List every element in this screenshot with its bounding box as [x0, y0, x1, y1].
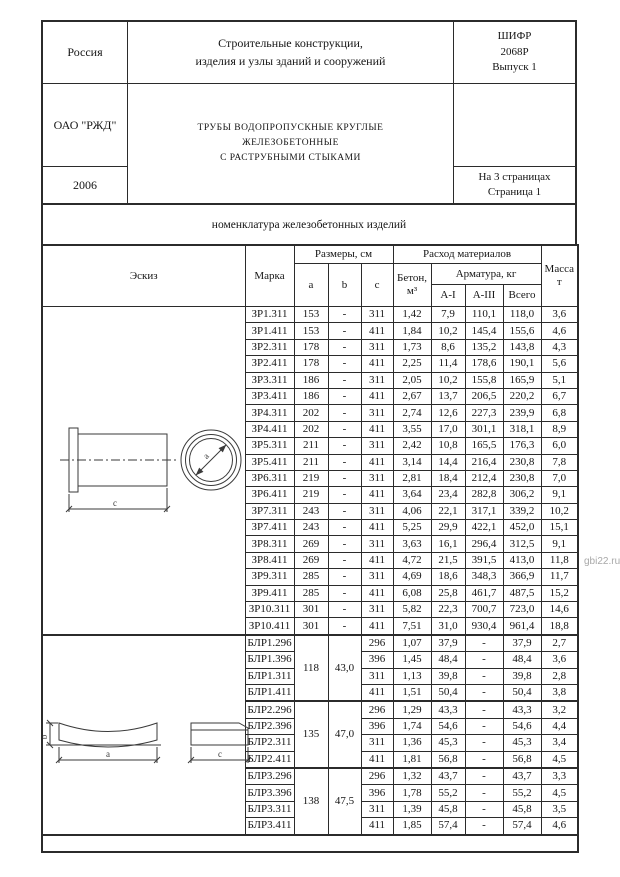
cell-rebar-total: 312,5 — [503, 536, 541, 552]
cell-dim-b: - — [328, 569, 361, 585]
cell-dim-b: - — [328, 454, 361, 470]
cell-rebar-aiii: - — [465, 768, 503, 785]
cell-rebar-ai: 17,0 — [431, 421, 465, 437]
cell-dim-c: 311 — [361, 438, 393, 454]
cell-mass: 15,1 — [541, 520, 578, 536]
cell-dim-c: 411 — [361, 818, 393, 835]
cell-dim-b: - — [328, 388, 361, 404]
cell-mass: 3,6 — [541, 652, 578, 668]
cell-dim-a: 153 — [294, 307, 328, 323]
cell-dim-b: - — [328, 503, 361, 519]
cell-concrete: 1,85 — [393, 818, 431, 835]
cell-mark: БЛР2.411 — [245, 751, 294, 768]
cell-dim-c: 411 — [361, 585, 393, 601]
cell-rebar-total: 487,5 — [503, 585, 541, 601]
cell-mass: 10,2 — [541, 503, 578, 519]
cell-rebar-total: 230,8 — [503, 470, 541, 486]
cell-rebar-aiii: 930,4 — [465, 618, 503, 635]
cell-dim-c: 411 — [361, 388, 393, 404]
cell-rebar-total: 961,4 — [503, 618, 541, 635]
cell-dim-c: 396 — [361, 718, 393, 734]
cell-rebar-aiii: 348,3 — [465, 569, 503, 585]
cell-rebar-total: 413,0 — [503, 552, 541, 568]
cell-dim-a: 269 — [294, 536, 328, 552]
table-row: b a c БЛР1.29611843,02961,0737,9-37,92,7 — [42, 635, 578, 652]
cell-mark: ЗР8.411 — [245, 552, 294, 568]
cell-mass: 3,6 — [541, 307, 578, 323]
cell-dim-b: - — [328, 552, 361, 568]
saddle-sketch: b a c — [43, 697, 253, 773]
pipe-length-label: c — [113, 498, 117, 508]
cell-dim-c: 411 — [361, 684, 393, 701]
cell-concrete: 1,13 — [393, 668, 431, 684]
cell-dim-c: 411 — [361, 421, 393, 437]
table-footer-strip — [42, 835, 578, 852]
cell-mass: 14,6 — [541, 602, 578, 618]
cell-dim-a: 285 — [294, 585, 328, 601]
cell-rebar-total: 318,1 — [503, 421, 541, 437]
cell-rebar-total: 54,6 — [503, 718, 541, 734]
cell-dim-c: 411 — [361, 552, 393, 568]
cell-dim-b: - — [328, 470, 361, 486]
cell-mass: 3,5 — [541, 801, 578, 817]
cell-dim-c: 311 — [361, 372, 393, 388]
cell-mark: ЗР5.411 — [245, 454, 294, 470]
cell-dim-a: 211 — [294, 438, 328, 454]
cell-rebar-aiii: 461,7 — [465, 585, 503, 601]
cell-mass: 4,6 — [541, 818, 578, 835]
cell-mass: 4,3 — [541, 339, 578, 355]
cell-concrete: 2,67 — [393, 388, 431, 404]
organization-label: ОАО "РЖД" — [43, 84, 128, 167]
cell-mass: 6,7 — [541, 388, 578, 404]
cell-dim-c: 311 — [361, 801, 393, 817]
cell-mark: БЛР2.311 — [245, 735, 294, 751]
cell-dim-a: 186 — [294, 372, 328, 388]
cell-mark: ЗР1.411 — [245, 323, 294, 339]
table-body: c a ЗР1.311153-3111,427,9110,1118,03,6ЗР… — [42, 307, 578, 852]
cell-rebar-ai: 8,6 — [431, 339, 465, 355]
col-header-concrete: Бетон, м³ — [393, 264, 431, 307]
cell-mark: БЛР1.311 — [245, 668, 294, 684]
cell-dim-b: 43,0 — [328, 635, 361, 702]
cell-mark: ЗР2.311 — [245, 339, 294, 355]
cell-rebar-aiii: 422,1 — [465, 520, 503, 536]
cell-rebar-total: 339,2 — [503, 503, 541, 519]
cell-mark: ЗР4.411 — [245, 421, 294, 437]
cell-dim-c: 311 — [361, 339, 393, 355]
cell-dim-c: 411 — [361, 520, 393, 536]
cell-mass: 3,8 — [541, 684, 578, 701]
cell-mark: БЛР2.296 — [245, 701, 294, 718]
cell-mass: 3,4 — [541, 735, 578, 751]
cell-concrete: 2,42 — [393, 438, 431, 454]
cell-concrete: 1,81 — [393, 751, 431, 768]
cell-rebar-total: 55,2 — [503, 785, 541, 801]
cell-rebar-aiii: - — [465, 668, 503, 684]
cell-rebar-total: 366,9 — [503, 569, 541, 585]
cell-rebar-aiii: 110,1 — [465, 307, 503, 323]
cell-rebar-total: 220,2 — [503, 388, 541, 404]
cell-rebar-ai: 45,3 — [431, 735, 465, 751]
pipe-side-view: c — [60, 428, 176, 512]
cell-concrete: 5,25 — [393, 520, 431, 536]
cell-dim-a: 135 — [294, 701, 328, 768]
cell-mark: ЗР1.311 — [245, 307, 294, 323]
cell-mass: 15,2 — [541, 585, 578, 601]
cell-dim-a: 138 — [294, 768, 328, 835]
cell-rebar-aiii: 296,4 — [465, 536, 503, 552]
cell-dim-b: - — [328, 356, 361, 372]
cell-mass: 18,8 — [541, 618, 578, 635]
cell-rebar-ai: 14,4 — [431, 454, 465, 470]
cell-rebar-total: 176,3 — [503, 438, 541, 454]
cell-dim-b: - — [328, 307, 361, 323]
cell-rebar-aiii: - — [465, 718, 503, 734]
cell-mark: ЗР6.311 — [245, 470, 294, 486]
cell-rebar-total: 50,4 — [503, 684, 541, 701]
pipe-sketch: c a — [45, 418, 243, 522]
cell-rebar-ai: 43,7 — [431, 768, 465, 785]
cell-rebar-ai: 43,3 — [431, 701, 465, 718]
cell-mass: 7,0 — [541, 470, 578, 486]
cell-concrete: 3,14 — [393, 454, 431, 470]
document-page: Россия ОАО "РЖД" 2006 Строительные конст… — [0, 0, 620, 877]
cell-dim-a: 211 — [294, 454, 328, 470]
cell-rebar-aiii: 282,8 — [465, 487, 503, 503]
col-header-dimensions: Размеры, см — [294, 245, 393, 264]
cell-rebar-aiii: - — [465, 635, 503, 652]
sketch-saddle-cell: b a c — [42, 635, 245, 835]
pages-label: На 3 страницах Страница 1 — [454, 167, 575, 203]
cell-rebar-ai: 23,4 — [431, 487, 465, 503]
cell-rebar-aiii: 700,7 — [465, 602, 503, 618]
cell-mark: ЗР5.311 — [245, 438, 294, 454]
saddle-front-view: b a — [43, 723, 161, 763]
cell-dim-c: 296 — [361, 635, 393, 652]
year-label: 2006 — [43, 167, 128, 203]
cell-concrete: 1,39 — [393, 801, 431, 817]
document-title: ТРУБЫ ВОДОПРОПУСКНЫЕ КРУГЛЫЕ ЖЕЛЕЗОБЕТОН… — [128, 84, 454, 203]
cell-dim-c: 411 — [361, 454, 393, 470]
cell-dim-c: 411 — [361, 751, 393, 768]
cell-rebar-total: 452,0 — [503, 520, 541, 536]
cell-dim-b: - — [328, 520, 361, 536]
cell-concrete: 3,64 — [393, 487, 431, 503]
cell-rebar-aiii: 227,3 — [465, 405, 503, 421]
cell-rebar-ai: 7,9 — [431, 307, 465, 323]
cell-rebar-aiii: - — [465, 785, 503, 801]
cell-rebar-ai: 50,4 — [431, 684, 465, 701]
cell-concrete: 3,63 — [393, 536, 431, 552]
cell-rebar-ai: 29,9 — [431, 520, 465, 536]
cell-dim-a: 301 — [294, 602, 328, 618]
title-block: Россия ОАО "РЖД" 2006 Строительные конст… — [41, 20, 577, 205]
cell-mark: ЗР10.411 — [245, 618, 294, 635]
cell-mark: ЗР3.311 — [245, 372, 294, 388]
cell-rebar-ai: 18,6 — [431, 569, 465, 585]
cell-mark: БЛР1.296 — [245, 635, 294, 652]
cell-mass: 9,1 — [541, 536, 578, 552]
cell-concrete: 3,55 — [393, 421, 431, 437]
cell-rebar-aiii: 135,2 — [465, 339, 503, 355]
cell-concrete: 4,69 — [393, 569, 431, 585]
cell-rebar-ai: 22,3 — [431, 602, 465, 618]
cell-rebar-aiii: 145,4 — [465, 323, 503, 339]
cell-mass: 4,5 — [541, 785, 578, 801]
cell-dim-b: - — [328, 602, 361, 618]
cell-dim-b: - — [328, 339, 361, 355]
cell-dim-b: 47,0 — [328, 701, 361, 768]
cell-dim-a: 219 — [294, 470, 328, 486]
col-header-a: a — [294, 264, 328, 307]
series-title: Строительные конструкции, изделия и узлы… — [128, 22, 454, 84]
col-header-b: b — [328, 264, 361, 307]
cell-mass: 6,8 — [541, 405, 578, 421]
cell-concrete: 1,07 — [393, 635, 431, 652]
col-header-ai: А-I — [431, 285, 465, 307]
cell-mark: БЛР2.396 — [245, 718, 294, 734]
cell-rebar-aiii: 178,6 — [465, 356, 503, 372]
cell-mass: 9,1 — [541, 487, 578, 503]
cell-rebar-total: 43,3 — [503, 701, 541, 718]
saddle-height-label: b — [43, 734, 49, 739]
cell-mark: ЗР3.411 — [245, 388, 294, 404]
cell-rebar-ai: 56,8 — [431, 751, 465, 768]
cell-rebar-ai: 12,6 — [431, 405, 465, 421]
cell-rebar-ai: 22,1 — [431, 503, 465, 519]
cell-mark: БЛР3.396 — [245, 785, 294, 801]
empty-cell — [454, 84, 575, 167]
cell-concrete: 2,05 — [393, 372, 431, 388]
cell-rebar-aiii: - — [465, 652, 503, 668]
cell-mass: 11,8 — [541, 552, 578, 568]
watermark: gbi22.ru — [584, 556, 620, 567]
cell-mass: 5,1 — [541, 372, 578, 388]
product-table: Эскиз Марка Размеры, см Расход материало… — [41, 244, 579, 853]
cell-dim-c: 411 — [361, 356, 393, 372]
cell-rebar-ai: 10,2 — [431, 323, 465, 339]
col-header-aiii: А-III — [465, 285, 503, 307]
cell-concrete: 7,51 — [393, 618, 431, 635]
cell-mass: 4,4 — [541, 718, 578, 734]
cell-dim-c: 411 — [361, 487, 393, 503]
cell-rebar-aiii: - — [465, 684, 503, 701]
table-row: c a ЗР1.311153-3111,427,9110,1118,03,6 — [42, 307, 578, 323]
cell-rebar-aiii: 212,4 — [465, 470, 503, 486]
section-title: номенклатура железобетонных изделий — [41, 205, 577, 244]
cell-rebar-total: 45,8 — [503, 801, 541, 817]
saddle-length-label: c — [218, 749, 222, 759]
cell-mark: ЗР10.311 — [245, 602, 294, 618]
cell-dim-a: 186 — [294, 388, 328, 404]
cell-mass: 2,7 — [541, 635, 578, 652]
cell-dim-a: 178 — [294, 339, 328, 355]
cell-concrete: 1,73 — [393, 339, 431, 355]
cell-rebar-aiii: 391,5 — [465, 552, 503, 568]
cell-rebar-total: 43,7 — [503, 768, 541, 785]
pipe-diameter-label: a — [201, 451, 211, 461]
cell-concrete: 1,29 — [393, 701, 431, 718]
cell-concrete: 1,45 — [393, 652, 431, 668]
cell-rebar-total: 45,3 — [503, 735, 541, 751]
cell-rebar-aiii: - — [465, 751, 503, 768]
pipe-front-view: a — [181, 430, 241, 490]
cell-concrete: 2,74 — [393, 405, 431, 421]
col-header-c: c — [361, 264, 393, 307]
cell-rebar-total: 190,1 — [503, 356, 541, 372]
cell-mark: ЗР8.311 — [245, 536, 294, 552]
cell-dim-b: - — [328, 323, 361, 339]
cell-mass: 11,7 — [541, 569, 578, 585]
cell-concrete: 2,25 — [393, 356, 431, 372]
cell-concrete: 4,06 — [393, 503, 431, 519]
cell-mark: ЗР2.411 — [245, 356, 294, 372]
cell-dim-c: 311 — [361, 503, 393, 519]
cell-dim-c: 296 — [361, 768, 393, 785]
country-label: Россия — [43, 22, 128, 84]
cell-rebar-ai: 25,8 — [431, 585, 465, 601]
cell-concrete: 1,51 — [393, 684, 431, 701]
cell-dim-a: 153 — [294, 323, 328, 339]
cell-dim-a: 118 — [294, 635, 328, 702]
col-header-consumption: Расход материалов — [393, 245, 541, 264]
cell-rebar-total: 143,8 — [503, 339, 541, 355]
cell-dim-a: 243 — [294, 520, 328, 536]
cell-mark: ЗР6.411 — [245, 487, 294, 503]
cell-rebar-ai: 21,5 — [431, 552, 465, 568]
sketch-pipe-cell: c a — [42, 307, 245, 635]
cell-mark: БЛР3.411 — [245, 818, 294, 835]
cell-concrete: 1,84 — [393, 323, 431, 339]
cell-mass: 5,6 — [541, 356, 578, 372]
cell-dim-c: 311 — [361, 307, 393, 323]
cell-rebar-total: 57,4 — [503, 818, 541, 835]
cell-concrete: 1,78 — [393, 785, 431, 801]
cell-rebar-ai: 37,9 — [431, 635, 465, 652]
cell-dim-c: 311 — [361, 536, 393, 552]
cell-rebar-ai: 45,8 — [431, 801, 465, 817]
cell-dim-b: - — [328, 372, 361, 388]
cell-rebar-aiii: 155,8 — [465, 372, 503, 388]
cell-rebar-aiii: - — [465, 701, 503, 718]
cell-rebar-total: 39,8 — [503, 668, 541, 684]
cell-dim-a: 202 — [294, 421, 328, 437]
cell-dim-c: 311 — [361, 602, 393, 618]
cell-rebar-ai: 57,4 — [431, 818, 465, 835]
cell-mass: 3,3 — [541, 768, 578, 785]
cell-rebar-total: 48,4 — [503, 652, 541, 668]
cell-rebar-aiii: - — [465, 735, 503, 751]
cell-rebar-total: 723,0 — [503, 602, 541, 618]
cell-mark: ЗР7.311 — [245, 503, 294, 519]
cell-dim-b: 47,5 — [328, 768, 361, 835]
cell-dim-a: 269 — [294, 552, 328, 568]
cell-concrete: 1,36 — [393, 735, 431, 751]
cell-dim-b: - — [328, 421, 361, 437]
cell-concrete: 2,81 — [393, 470, 431, 486]
col-header-rebar: Арматура, кг — [431, 264, 541, 285]
cell-mass: 3,2 — [541, 701, 578, 718]
cell-dim-c: 411 — [361, 323, 393, 339]
cell-rebar-ai: 10,8 — [431, 438, 465, 454]
cell-mark: БЛР3.311 — [245, 801, 294, 817]
cell-concrete: 1,42 — [393, 307, 431, 323]
cell-dim-b: - — [328, 438, 361, 454]
cell-concrete: 1,32 — [393, 768, 431, 785]
cell-rebar-ai: 13,7 — [431, 388, 465, 404]
cell-mass: 2,8 — [541, 668, 578, 684]
col-header-mass: Масса т — [541, 245, 578, 307]
cell-rebar-ai: 55,2 — [431, 785, 465, 801]
cell-mass: 4,6 — [541, 323, 578, 339]
cell-rebar-aiii: 317,1 — [465, 503, 503, 519]
cell-mass: 7,8 — [541, 454, 578, 470]
cell-rebar-total: 118,0 — [503, 307, 541, 323]
cell-rebar-ai: 16,1 — [431, 536, 465, 552]
cell-mass: 8,9 — [541, 421, 578, 437]
cell-concrete: 5,82 — [393, 602, 431, 618]
cell-dim-a: 301 — [294, 618, 328, 635]
cell-rebar-total: 56,8 — [503, 751, 541, 768]
saddle-width-label: a — [106, 749, 110, 759]
cell-rebar-total: 155,6 — [503, 323, 541, 339]
cell-rebar-total: 239,9 — [503, 405, 541, 421]
cell-rebar-aiii: 165,5 — [465, 438, 503, 454]
cell-rebar-aiii: 216,4 — [465, 454, 503, 470]
col-header-total: Всего — [503, 285, 541, 307]
cell-rebar-ai: 48,4 — [431, 652, 465, 668]
cell-dim-b: - — [328, 618, 361, 635]
cell-dim-b: - — [328, 536, 361, 552]
cell-mark: БЛР1.411 — [245, 684, 294, 701]
cell-rebar-aiii: 301,1 — [465, 421, 503, 437]
cell-dim-c: 411 — [361, 618, 393, 635]
cell-rebar-ai: 54,6 — [431, 718, 465, 734]
cell-dim-b: - — [328, 487, 361, 503]
cell-dim-c: 311 — [361, 668, 393, 684]
cell-rebar-total: 306,2 — [503, 487, 541, 503]
cell-mark: ЗР7.411 — [245, 520, 294, 536]
cell-dim-c: 296 — [361, 701, 393, 718]
cell-dim-c: 311 — [361, 569, 393, 585]
cell-dim-a: 219 — [294, 487, 328, 503]
cell-rebar-aiii: 206,5 — [465, 388, 503, 404]
cell-concrete: 6,08 — [393, 585, 431, 601]
cell-dim-b: - — [328, 585, 361, 601]
document-sheet: Россия ОАО "РЖД" 2006 Строительные конст… — [41, 20, 577, 853]
cell-rebar-total: 165,9 — [503, 372, 541, 388]
col-header-sketch: Эскиз — [42, 245, 245, 307]
cell-concrete: 1,74 — [393, 718, 431, 734]
cell-dim-c: 396 — [361, 785, 393, 801]
cell-rebar-total: 230,8 — [503, 454, 541, 470]
cell-rebar-aiii: - — [465, 801, 503, 817]
cipher-label: ШИФР 2068Р Выпуск 1 — [454, 22, 575, 84]
cell-dim-c: 311 — [361, 470, 393, 486]
cell-mark: ЗР9.311 — [245, 569, 294, 585]
cell-rebar-aiii: - — [465, 818, 503, 835]
cell-dim-a: 178 — [294, 356, 328, 372]
cell-dim-c: 396 — [361, 652, 393, 668]
cell-dim-c: 311 — [361, 405, 393, 421]
cell-dim-a: 243 — [294, 503, 328, 519]
cell-mass: 6,0 — [541, 438, 578, 454]
cell-rebar-ai: 18,4 — [431, 470, 465, 486]
cell-mark: БЛР1.396 — [245, 652, 294, 668]
cell-concrete: 4,72 — [393, 552, 431, 568]
cell-dim-b: - — [328, 405, 361, 421]
